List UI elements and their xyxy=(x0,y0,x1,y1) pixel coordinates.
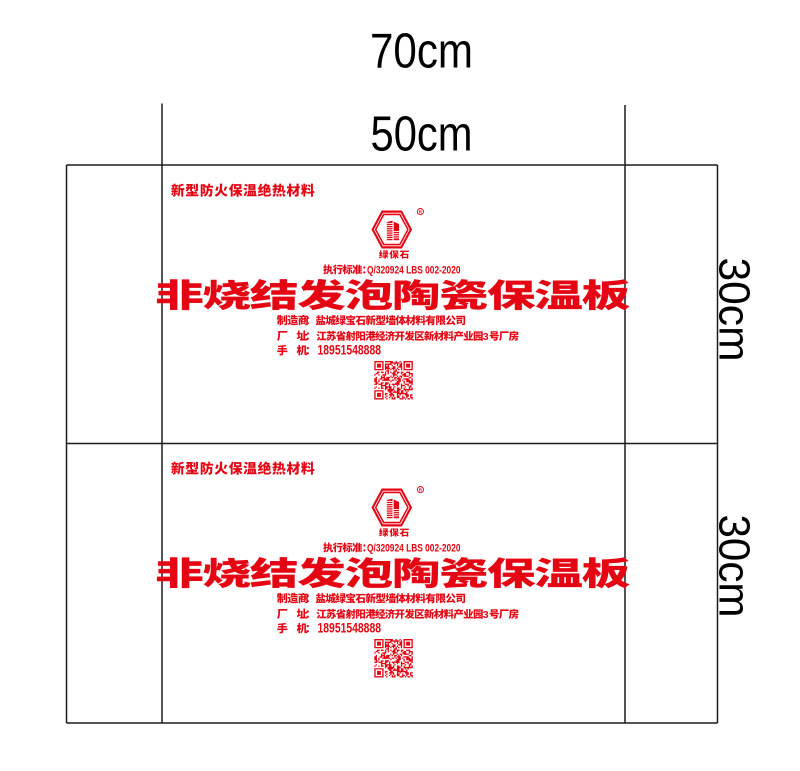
svg-text:3: 3 xyxy=(483,609,489,621)
svg-text:50cm: 50cm xyxy=(371,108,473,162)
svg-text:18951548888: 18951548888 xyxy=(318,621,382,636)
svg-text:70cm: 70cm xyxy=(370,24,473,79)
svg-text:Q/320924 LBS 002-2020: Q/320924 LBS 002-2020 xyxy=(367,542,461,554)
svg-text:Q/320924 LBS 002-2020: Q/320924 LBS 002-2020 xyxy=(367,264,461,276)
svg-text:30cm: 30cm xyxy=(710,258,759,362)
svg-text:3: 3 xyxy=(483,331,489,343)
svg-text:18951548888: 18951548888 xyxy=(318,343,382,358)
svg-text:30cm: 30cm xyxy=(710,515,759,618)
